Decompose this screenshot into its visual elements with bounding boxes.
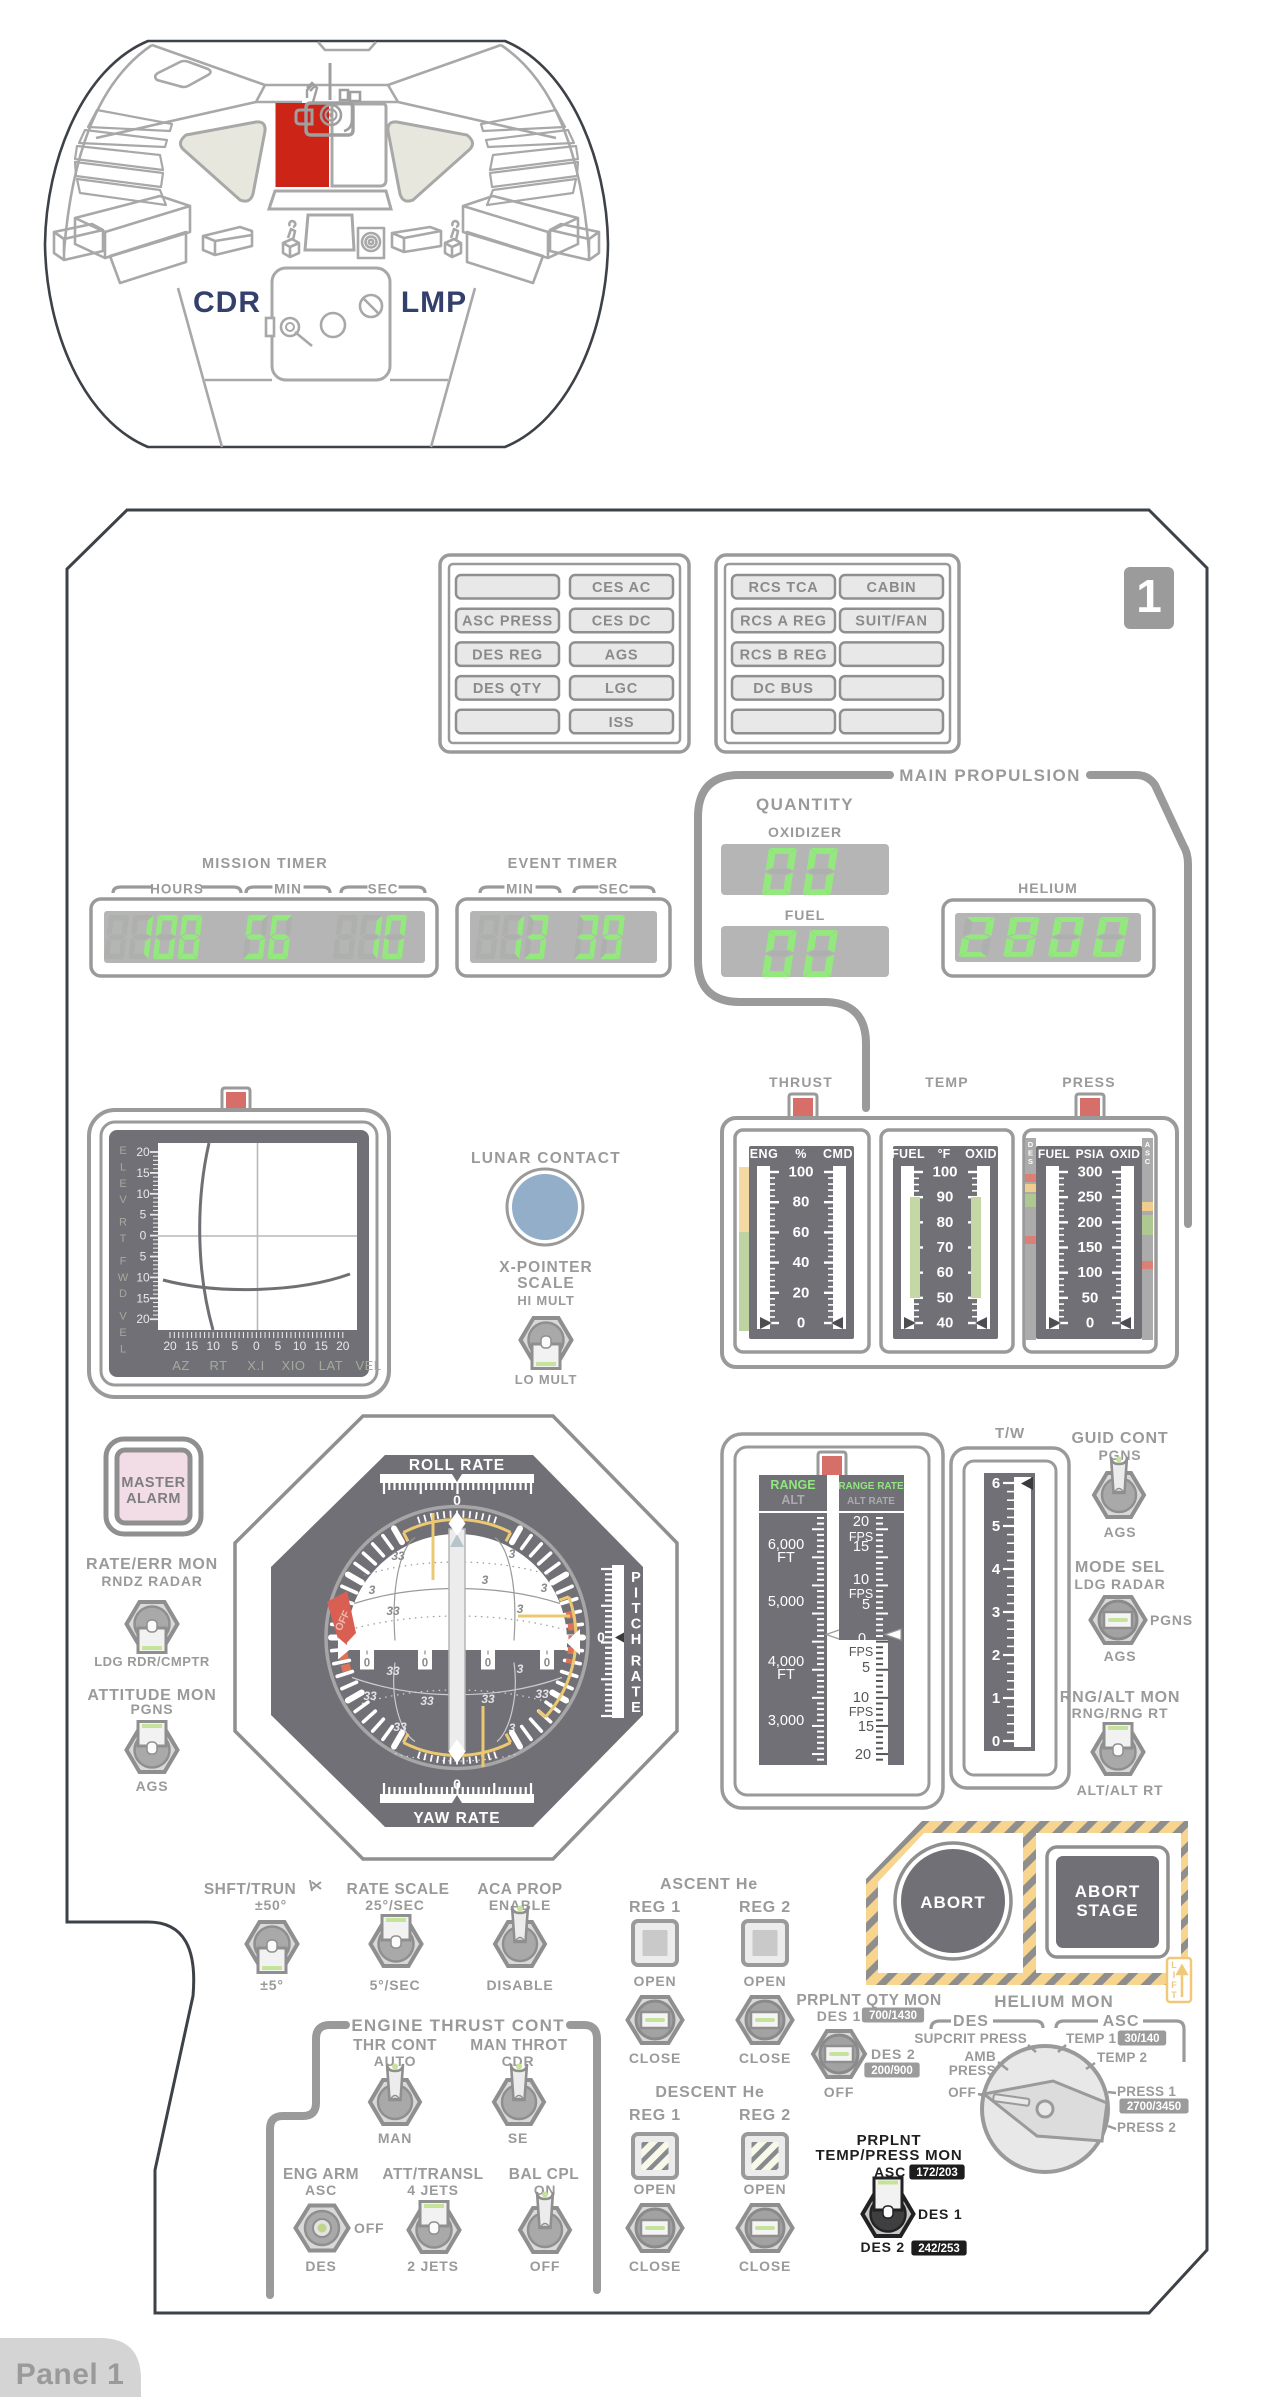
svg-text:PGNS: PGNS <box>131 1701 174 1717</box>
svg-text:LMP: LMP <box>401 286 467 319</box>
svg-text:10: 10 <box>136 1187 150 1201</box>
svg-text:100: 100 <box>788 1164 813 1181</box>
svg-text:T: T <box>632 1685 641 1701</box>
svg-text:2: 2 <box>992 1647 1000 1664</box>
svg-text:ASCENT He: ASCENT He <box>660 1876 758 1893</box>
svg-text:X.I: X.I <box>247 1358 264 1373</box>
svg-text:33: 33 <box>386 1664 400 1678</box>
svg-text:MIN: MIN <box>274 882 302 897</box>
svg-text:VEL: VEL <box>355 1358 381 1373</box>
svg-text:MAN THROT: MAN THROT <box>470 2037 568 2054</box>
svg-text:CDR: CDR <box>193 286 261 319</box>
svg-text:CES AC: CES AC <box>592 580 651 596</box>
svg-text:REG 2: REG 2 <box>739 2107 791 2124</box>
svg-text:PRESS: PRESS <box>1062 1074 1115 1090</box>
svg-text:RNG/RNG RT: RNG/RNG RT <box>1072 1705 1169 1721</box>
svg-text:SHFT/TRUN: SHFT/TRUN <box>204 1881 296 1898</box>
svg-text:REG 1: REG 1 <box>629 1899 681 1916</box>
svg-text:60: 60 <box>793 1224 810 1241</box>
svg-text:L: L <box>120 1343 126 1355</box>
svg-text:20: 20 <box>136 1312 150 1326</box>
svg-text:FUEL: FUEL <box>1038 1147 1070 1161</box>
svg-text:70: 70 <box>937 1239 954 1256</box>
svg-text:CLOSE: CLOSE <box>739 2258 791 2274</box>
svg-text:PRPLNT QTY MON: PRPLNT QTY MON <box>796 1992 941 2009</box>
svg-text:TEMP 2: TEMP 2 <box>1097 2050 1147 2065</box>
svg-text:BAL CPL: BAL CPL <box>509 2166 579 2183</box>
svg-text:3: 3 <box>517 1602 524 1616</box>
svg-text:SEC: SEC <box>368 882 399 897</box>
svg-text:20: 20 <box>793 1284 810 1301</box>
svg-text:F: F <box>1171 1980 1177 1990</box>
svg-text:4: 4 <box>992 1561 1001 1578</box>
svg-text:5: 5 <box>992 1518 1000 1535</box>
svg-text:T: T <box>632 1601 641 1617</box>
svg-text:DESCENT He: DESCENT He <box>655 2084 764 2101</box>
svg-text:Panel 1: Panel 1 <box>16 2358 125 2391</box>
svg-text:6: 6 <box>992 1475 1000 1492</box>
svg-text:CMD: CMD <box>823 1147 853 1161</box>
svg-text:0: 0 <box>1086 1315 1094 1332</box>
svg-text:5: 5 <box>275 1339 282 1353</box>
svg-text:OFF: OFF <box>530 2258 560 2274</box>
svg-text:MASTER: MASTER <box>121 1475 185 1491</box>
svg-text:700/1430: 700/1430 <box>869 2010 917 2022</box>
svg-text:HOURS: HOURS <box>150 882 204 897</box>
svg-text:3: 3 <box>482 1573 489 1587</box>
svg-text:20: 20 <box>853 1514 869 1530</box>
svg-text:15: 15 <box>185 1339 199 1353</box>
svg-text:T: T <box>1171 1990 1177 2000</box>
svg-text:S: S <box>1028 1157 1033 1166</box>
svg-text:T: T <box>120 1233 127 1245</box>
svg-text:33: 33 <box>420 1694 434 1708</box>
svg-text:YAW RATE: YAW RATE <box>413 1810 500 1827</box>
svg-text:172/203: 172/203 <box>916 2167 958 2179</box>
svg-text:4 JETS: 4 JETS <box>407 2182 459 2198</box>
svg-text:5: 5 <box>140 1250 147 1264</box>
svg-text:33: 33 <box>535 1687 549 1701</box>
svg-text:3: 3 <box>509 1547 516 1561</box>
svg-text:I: I <box>634 1586 638 1602</box>
svg-text:E: E <box>119 1327 126 1339</box>
svg-text:ALT RATE: ALT RATE <box>847 1496 895 1507</box>
svg-text:DES: DES <box>953 2013 989 2030</box>
svg-text:3: 3 <box>992 1604 1000 1621</box>
svg-text:10: 10 <box>136 1270 150 1284</box>
svg-text:3: 3 <box>369 1583 376 1597</box>
svg-text:HELIUM: HELIUM <box>1018 880 1078 896</box>
svg-text:1: 1 <box>1136 570 1162 622</box>
svg-text:DISABLE: DISABLE <box>486 1977 553 1993</box>
svg-text:RANGE RATE: RANGE RATE <box>838 1481 904 1492</box>
svg-text:ENG: ENG <box>750 1147 779 1161</box>
svg-text:MIN: MIN <box>506 882 534 897</box>
svg-text:ATT/TRANSL: ATT/TRANSL <box>382 2166 483 2183</box>
svg-text:THRUST: THRUST <box>769 1074 833 1090</box>
svg-text:300: 300 <box>1077 1164 1102 1181</box>
svg-text:5,000: 5,000 <box>768 1594 804 1610</box>
svg-text:ROLL RATE: ROLL RATE <box>409 1457 505 1474</box>
svg-text:AGS: AGS <box>1104 1648 1137 1664</box>
svg-text:200: 200 <box>1077 1214 1102 1231</box>
svg-text:DES 1: DES 1 <box>817 2008 861 2024</box>
svg-text:200/900: 200/900 <box>871 2065 913 2077</box>
svg-text:ALT: ALT <box>781 1493 805 1507</box>
svg-text:OPEN: OPEN <box>634 1973 677 1989</box>
svg-text:LUNAR CONTACT: LUNAR CONTACT <box>471 1150 621 1167</box>
svg-text:5: 5 <box>862 1660 870 1676</box>
svg-text:L: L <box>1171 1960 1177 1970</box>
svg-text:THR CONT: THR CONT <box>353 2037 437 2054</box>
svg-text:DES QTY: DES QTY <box>473 681 542 697</box>
svg-text:ASC: ASC <box>305 2182 337 2198</box>
svg-text:AZ: AZ <box>172 1358 190 1373</box>
svg-text:DES: DES <box>305 2258 336 2274</box>
svg-text:ABORT: ABORT <box>920 1893 985 1912</box>
svg-text:ASC PRESS: ASC PRESS <box>462 614 553 630</box>
svg-text:W: W <box>118 1272 129 1284</box>
svg-text:90: 90 <box>937 1189 954 1206</box>
svg-text:ABORT: ABORT <box>1075 1882 1140 1901</box>
svg-text:0: 0 <box>422 1658 428 1670</box>
svg-text:CLOSE: CLOSE <box>629 2050 681 2066</box>
svg-text:OXIDIZER: OXIDIZER <box>768 824 842 840</box>
svg-text:E: E <box>631 1700 641 1716</box>
svg-text:20: 20 <box>336 1339 350 1353</box>
svg-text:3: 3 <box>541 1581 548 1595</box>
svg-text:H: H <box>631 1632 641 1648</box>
svg-text:A: A <box>631 1669 642 1685</box>
svg-text:MODE SEL: MODE SEL <box>1075 1559 1165 1576</box>
svg-text:10: 10 <box>207 1339 221 1353</box>
svg-text:ISS: ISS <box>609 715 635 731</box>
svg-text:0: 0 <box>253 1339 260 1353</box>
svg-text:0: 0 <box>544 1658 550 1670</box>
svg-text:80: 80 <box>937 1214 954 1231</box>
svg-text:RCS TCA: RCS TCA <box>748 580 818 596</box>
svg-text:RANGE: RANGE <box>770 1478 815 1492</box>
svg-text:V: V <box>119 1311 127 1323</box>
svg-text:I: I <box>1173 1970 1176 1980</box>
svg-text:C: C <box>1145 1157 1151 1166</box>
svg-text:RT: RT <box>209 1358 227 1373</box>
svg-text:E: E <box>119 1145 126 1157</box>
svg-text:DES 2: DES 2 <box>861 2239 905 2255</box>
svg-text:QUANTITY: QUANTITY <box>756 795 854 814</box>
svg-text:REG 2: REG 2 <box>739 1899 791 1916</box>
svg-text:PRESS 2: PRESS 2 <box>1117 2120 1176 2135</box>
svg-text:0: 0 <box>992 1733 1000 1750</box>
svg-text:20: 20 <box>855 1747 871 1763</box>
svg-text:DES REG: DES REG <box>472 647 543 663</box>
svg-text:RCS A REG: RCS A REG <box>740 614 827 630</box>
svg-text:LDG RDR/CMPTR: LDG RDR/CMPTR <box>94 1654 210 1669</box>
svg-text:OXID: OXID <box>1110 1147 1140 1161</box>
svg-text:HELIUM MON: HELIUM MON <box>994 1992 1114 2011</box>
svg-text:40: 40 <box>937 1315 954 1332</box>
svg-text:FT: FT <box>777 1667 795 1683</box>
svg-text:DES 2: DES 2 <box>871 2046 915 2062</box>
svg-text:0: 0 <box>485 1658 491 1670</box>
svg-text:SUIT/FAN: SUIT/FAN <box>855 614 927 630</box>
svg-text:AGS: AGS <box>136 1778 169 1794</box>
svg-text:F: F <box>120 1255 127 1267</box>
svg-text:10: 10 <box>853 1690 869 1706</box>
svg-text:15: 15 <box>136 1166 150 1180</box>
svg-text:PGNS: PGNS <box>1150 1612 1193 1628</box>
svg-text:OPEN: OPEN <box>634 2181 677 2197</box>
svg-text:FPS: FPS <box>849 1645 873 1659</box>
svg-text:D: D <box>119 1288 127 1300</box>
svg-text:RCS B REG: RCS B REG <box>740 647 828 663</box>
svg-text:ENG ARM: ENG ARM <box>283 2166 359 2183</box>
svg-text:OXID: OXID <box>965 1147 997 1161</box>
svg-text:SUPCRIT PRESS: SUPCRIT PRESS <box>914 2031 1027 2046</box>
svg-text:AMB: AMB <box>964 2049 996 2064</box>
svg-text:15: 15 <box>853 1539 869 1555</box>
svg-text:RATE/ERR MON: RATE/ERR MON <box>86 1556 218 1573</box>
svg-text:15: 15 <box>136 1291 150 1305</box>
svg-text:50: 50 <box>1082 1289 1099 1306</box>
svg-text:LAT: LAT <box>319 1358 343 1373</box>
svg-text:OPEN: OPEN <box>744 2181 787 2197</box>
svg-text:CABIN: CABIN <box>867 580 917 596</box>
svg-text:5: 5 <box>862 1597 870 1613</box>
svg-text:EVENT TIMER: EVENT TIMER <box>508 856 619 872</box>
svg-text:PRESS 1: PRESS 1 <box>1117 2084 1176 2099</box>
svg-text:GUID CONT: GUID CONT <box>1072 1430 1169 1447</box>
svg-text:5°/SEC: 5°/SEC <box>370 1977 421 1993</box>
svg-text:0: 0 <box>364 1658 370 1670</box>
svg-text:ASC: ASC <box>1103 2013 1140 2030</box>
svg-text:±50°: ±50° <box>255 1897 287 1913</box>
svg-text:33: 33 <box>363 1689 377 1703</box>
svg-text:OFF: OFF <box>824 2084 854 2100</box>
svg-text:3: 3 <box>517 1662 524 1676</box>
svg-text:TEMP/PRESS MON: TEMP/PRESS MON <box>815 2147 962 2164</box>
svg-text:LO MULT: LO MULT <box>515 1372 577 1387</box>
svg-text:5: 5 <box>140 1208 147 1222</box>
svg-text:ACA PROP: ACA PROP <box>477 1881 562 1898</box>
svg-text:C: C <box>631 1617 642 1633</box>
svg-text:ALT/ALT RT: ALT/ALT RT <box>1077 1782 1164 1798</box>
svg-text:REG 1: REG 1 <box>629 2107 681 2124</box>
svg-text:DES 1: DES 1 <box>918 2206 962 2222</box>
svg-text:10: 10 <box>853 1572 869 1588</box>
svg-text:40: 40 <box>793 1254 810 1271</box>
svg-text:AGS: AGS <box>1104 1524 1137 1540</box>
svg-text:MAIN PROPULSION: MAIN PROPULSION <box>899 766 1081 785</box>
svg-text:50: 50 <box>937 1289 954 1306</box>
svg-text:33: 33 <box>386 1604 400 1618</box>
svg-text:TEMP: TEMP <box>925 1074 969 1090</box>
svg-text:20: 20 <box>136 1145 150 1159</box>
svg-text:DC BUS: DC BUS <box>753 681 813 697</box>
svg-text:°F: °F <box>938 1147 951 1161</box>
svg-text:PRESS: PRESS <box>949 2063 996 2078</box>
svg-text:STAGE: STAGE <box>1076 1901 1138 1920</box>
svg-text:OFF: OFF <box>948 2085 976 2100</box>
svg-text:ENGINE THRUST CONT: ENGINE THRUST CONT <box>351 2016 564 2035</box>
svg-text:T/W: T/W <box>995 1425 1025 1442</box>
svg-text:100: 100 <box>1077 1264 1102 1281</box>
svg-text:MISSION TIMER: MISSION TIMER <box>202 856 328 872</box>
svg-text:AGS: AGS <box>605 647 639 663</box>
svg-text:242/253: 242/253 <box>918 2243 960 2255</box>
svg-text:P: P <box>631 1570 641 1586</box>
svg-text:RNDZ RADAR: RNDZ RADAR <box>101 1573 202 1589</box>
svg-text:MAN: MAN <box>378 2130 412 2146</box>
svg-text:20: 20 <box>163 1339 177 1353</box>
svg-text:±5°: ±5° <box>260 1977 283 1993</box>
svg-text:33: 33 <box>481 1692 495 1706</box>
svg-text:X-POINTER: X-POINTER <box>499 1259 592 1276</box>
svg-text:25°/SEC: 25°/SEC <box>365 1897 424 1913</box>
svg-text:PSIA: PSIA <box>1076 1147 1105 1161</box>
svg-text:HI MULT: HI MULT <box>517 1293 574 1308</box>
svg-text:5: 5 <box>231 1339 238 1353</box>
svg-text:OPEN: OPEN <box>744 1973 787 1989</box>
svg-text:3,000: 3,000 <box>768 1713 804 1729</box>
svg-text:ALARM: ALARM <box>126 1491 181 1507</box>
svg-text:%: % <box>795 1147 807 1161</box>
svg-text:FUEL: FUEL <box>785 907 826 923</box>
svg-text:100: 100 <box>932 1164 957 1181</box>
svg-text:SE: SE <box>508 2130 528 2146</box>
svg-text:LGC: LGC <box>605 681 638 697</box>
svg-text:L: L <box>120 1161 126 1173</box>
svg-text:0: 0 <box>797 1315 805 1332</box>
svg-text:V: V <box>119 1194 127 1206</box>
svg-text:XIO: XIO <box>282 1358 306 1373</box>
svg-text:CLOSE: CLOSE <box>739 2050 791 2066</box>
svg-text:RATE SCALE: RATE SCALE <box>347 1881 450 1898</box>
svg-text:15: 15 <box>315 1339 329 1353</box>
svg-text:SCALE: SCALE <box>517 1275 575 1292</box>
svg-text:2 JETS: 2 JETS <box>407 2258 459 2274</box>
svg-text:10: 10 <box>293 1339 307 1353</box>
svg-text:60: 60 <box>937 1264 954 1281</box>
svg-text:R: R <box>631 1654 642 1670</box>
svg-text:R: R <box>119 1217 127 1229</box>
svg-text:SEC: SEC <box>599 882 630 897</box>
svg-text:1: 1 <box>992 1690 1000 1707</box>
svg-text:CLOSE: CLOSE <box>629 2258 681 2274</box>
svg-text:0: 0 <box>140 1229 147 1243</box>
svg-text:E: E <box>119 1178 126 1190</box>
svg-text:FUEL: FUEL <box>891 1147 925 1161</box>
svg-text:LDG RADAR: LDG RADAR <box>1074 1576 1165 1592</box>
svg-text:OFF: OFF <box>354 2220 384 2236</box>
svg-text:250: 250 <box>1077 1189 1102 1206</box>
svg-text:2700/3450: 2700/3450 <box>1127 2101 1181 2113</box>
svg-text:33: 33 <box>391 1549 405 1563</box>
svg-text:0: 0 <box>597 1629 605 1645</box>
svg-text:150: 150 <box>1077 1239 1102 1256</box>
svg-text:FT: FT <box>777 1550 795 1566</box>
svg-text:15: 15 <box>858 1719 874 1735</box>
svg-text:CES DC: CES DC <box>592 614 652 630</box>
svg-text:80: 80 <box>793 1194 810 1211</box>
svg-text:RNG/ALT MON: RNG/ALT MON <box>1060 1689 1181 1706</box>
svg-text:30/140: 30/140 <box>1124 2033 1159 2045</box>
svg-text:TEMP 1: TEMP 1 <box>1066 2031 1117 2046</box>
svg-text:FPS: FPS <box>849 1705 873 1719</box>
